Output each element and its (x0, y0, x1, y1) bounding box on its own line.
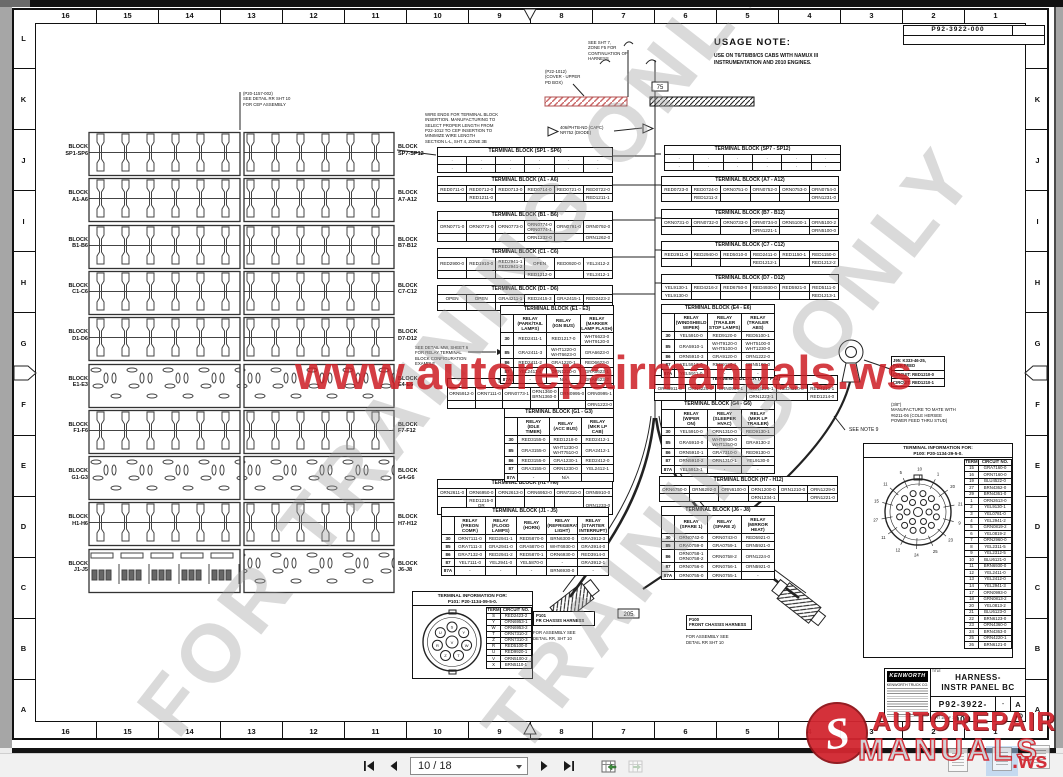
terminal-block-graphic (88, 455, 396, 501)
table-cell: 85 (662, 436, 675, 449)
table-cell: YEL9130-0 (741, 457, 774, 465)
table-cell (660, 493, 690, 501)
table-cell (689, 493, 719, 501)
table-cell: ORN1310-1 (708, 457, 741, 465)
table-cell: YEL5910-0 (675, 331, 708, 339)
circuit-cell: BRN5110-1 (501, 662, 532, 668)
p101-connector-drawing: VSYWTZRU (418, 609, 488, 677)
table-cell (777, 392, 808, 400)
first-page-button[interactable] (360, 757, 378, 775)
page-gap-top (0, 0, 1063, 7)
table-cell: YEL9130-0 (662, 291, 692, 299)
svg-text:27: 27 (873, 518, 878, 523)
zone-letter: C (1026, 558, 1049, 619)
table-cell: RED0712-0 (467, 185, 496, 193)
table-cell: YEL5913-1 (675, 465, 708, 473)
table-cell: ORN1221-0 (808, 493, 838, 501)
table-cell: WHT1220-0 WHT6623-0 (547, 346, 580, 359)
table-title: TERMINAL BLOCK (C7 - C12) (661, 241, 839, 250)
zone-number: 11 (344, 722, 406, 740)
zone-letter: I (1026, 191, 1049, 252)
table-cell: ORN0791-0 (554, 220, 583, 233)
zone-letter: K (1026, 69, 1049, 130)
table-cell: GRN5921-0 (741, 542, 774, 550)
relay-header: RELAY (SPARE 1) (675, 515, 708, 533)
table-cell: 87 (505, 465, 518, 473)
see-note-9: SEE NOTE 9 (849, 427, 889, 433)
terminal-table-c1: TERMINAL BLOCK (C1 - C6)RED2900-0RED1910… (437, 248, 613, 279)
table-title: TERMINAL BLOCK (C1 - C6) (437, 248, 613, 257)
table-cell: RED0714-0 (525, 185, 554, 193)
table-cell: GRA0759-1 (708, 542, 741, 550)
viewer-canvas-left (0, 7, 12, 748)
table-cell: 30 (662, 427, 675, 435)
table-cell: ORN0755-1 (708, 571, 741, 579)
table-cell: ORN0734-0 (750, 218, 780, 226)
table-cell (496, 270, 525, 278)
table-cell: · (782, 162, 811, 170)
table-cell: ORN5921-0 (741, 563, 774, 571)
table-cell: 87 (662, 457, 675, 465)
block-label-right: BLOCK E4-E6 (398, 376, 442, 389)
table-cell: RED0721-0 (554, 185, 583, 193)
usage-note-title: USAGE NOTE: (714, 37, 791, 48)
table-cell: RED2412-1 (582, 435, 614, 443)
zone-number: 15 (96, 8, 158, 23)
table-cell: OPEN (438, 294, 467, 302)
zone-number: 9 (468, 8, 530, 23)
table-cell: GRA1230-1 (550, 457, 582, 465)
prev-view-icon (600, 759, 617, 774)
table-cell: · (525, 164, 554, 172)
block-label-left: BLOCK H1-H6 (44, 514, 88, 527)
table-cell: RED1212-0 (525, 270, 554, 278)
relay-table-j1: TERMINAL BLOCK (J1 - J5)RELAY (FREON COM… (441, 507, 609, 576)
table-cell: - (547, 559, 578, 567)
table-cell: RED1217-0 (547, 332, 580, 345)
table-cell: · (525, 156, 554, 164)
prev-view-button[interactable] (598, 757, 618, 775)
table-cell: · (438, 164, 467, 172)
zone-letter: L (12, 8, 35, 69)
table-title: TERMINAL BLOCK (E4 - E6) (661, 304, 775, 313)
last-page-button[interactable] (560, 757, 578, 775)
table-cell: RED5870-1 (516, 551, 547, 559)
table-title: TERMINAL BLOCK (A7 - A12) (661, 176, 839, 185)
table-cell: GRA6623-2 (580, 375, 613, 383)
table-cell: · (496, 156, 525, 164)
table-cell: ORN1221-1 (750, 226, 780, 234)
table-cell: ORN1222-0 (741, 353, 774, 361)
relay-header: RELAY (TRAILER ABS) (741, 313, 774, 331)
table-cell: RED2900-0 (438, 257, 467, 270)
table-cell: ORN5912-0 (448, 387, 476, 400)
table-cell (721, 193, 751, 201)
table-cell: ORN6100-0 (719, 485, 749, 493)
table-cell (780, 226, 810, 234)
table-cell: · (811, 154, 840, 162)
relay-header: RELAY (MARKER LAMP FLASH) (580, 314, 613, 332)
table-title: TERMINAL BLOCK (H7 - H12) (659, 476, 838, 485)
table-cell: ORN1210-0 (778, 485, 808, 493)
p100-info-panel: TERMINAL INFORMATION FOR: P100: P20-1134… (863, 443, 1013, 658)
prev-page-button[interactable] (385, 757, 403, 775)
zone-letter: B (12, 619, 35, 680)
relay-header: RELAY (MKR LP CAB) (582, 417, 614, 435)
zone-number: 9 (468, 722, 530, 740)
zone-number: 12 (282, 8, 344, 23)
table-cell: · (583, 164, 612, 172)
title-block-fine-print (887, 688, 928, 717)
table-cell: ORN4226-0 (685, 384, 716, 392)
terminal-block-graphic (88, 409, 396, 455)
table-cell (662, 226, 692, 234)
table-cell: ORN0756-0 (675, 563, 708, 571)
table-cell (721, 258, 751, 266)
table-cell: YEL5910-0 (675, 427, 708, 435)
table-cell (721, 226, 751, 234)
block-label-right: BLOCK B7-B12 (398, 237, 442, 250)
table-cell (467, 302, 496, 310)
table-cell: ORN4229-1 (746, 384, 777, 392)
relay-table-g4: TERMINAL BLOCK (G4 - G6)RELAY (WIPER ON)… (661, 400, 775, 474)
zone-number: 14 (158, 722, 220, 740)
table-cell: ORN7310-0 (554, 488, 583, 496)
table-cell: ORN1200-0 (748, 485, 778, 493)
zone-number: 7 (592, 8, 654, 23)
zone-number: 2 (902, 8, 964, 23)
table-cell: RED0722-0 (583, 185, 612, 193)
table-cell: RED2423-2 (583, 294, 612, 302)
table-cell: 87A (662, 571, 675, 579)
svg-text:11: 11 (881, 535, 886, 540)
table-cell: 86 (662, 550, 675, 563)
table-cell: ORN1234-1 (748, 493, 778, 501)
table-cell: RED2941-2 (485, 551, 516, 559)
page-number-combobox[interactable]: 10 / 18 (410, 757, 528, 775)
table-cell: · (496, 164, 525, 172)
table-cell: RED3155-0 (518, 435, 550, 443)
table-cell: ORN7111-0 (475, 387, 503, 400)
table-cell: RED1150-0 (809, 250, 839, 258)
next-page-button[interactable] (535, 757, 553, 775)
zone-number: 8 (530, 8, 592, 23)
zone-number: 1 (964, 8, 1026, 23)
page-number-value: 10 / 18 (411, 760, 452, 772)
svg-text:11: 11 (883, 482, 888, 487)
table-cell: RED6750-0 (721, 283, 751, 291)
table-cell: - (578, 567, 609, 575)
table-cell: - (485, 567, 516, 575)
table-cell: RED1213-1 (809, 291, 839, 299)
document-icon[interactable] (948, 748, 968, 772)
table-cell: 85 (505, 444, 518, 457)
block-label-right: BLOCK F7-F12 (398, 422, 442, 435)
zone-number: 15 (96, 722, 158, 740)
zone-letter: F (1026, 374, 1049, 435)
table-cell: ORN0773-1 (503, 387, 531, 400)
first-page-icon (362, 759, 376, 773)
table-cell: ORN0772-0 (467, 220, 496, 233)
block-label-right: BLOCK H7-H12 (398, 514, 442, 527)
svg-text:W: W (465, 643, 469, 648)
table-cell: GRA5910-1 (675, 340, 708, 353)
table-cell: RED5921-0 (741, 533, 774, 541)
table-cell: ORN0773-0 (496, 220, 525, 233)
table-cell: 87 (662, 361, 675, 369)
zone-letter: J (12, 130, 35, 191)
circuit-cell: ORN7310-3 (501, 638, 532, 644)
table-cell: RED2911-0 (662, 250, 692, 258)
table-cell: WHT6930-0 WHT1310-0 (708, 436, 741, 449)
table-cell: ORN1231-0 (809, 193, 839, 201)
table-cell (750, 193, 780, 201)
table-cell: ORN0755-0 (675, 571, 708, 579)
table-title: TERMINAL BLOCK (A1 - A6) (437, 176, 613, 185)
table-cell: RED1211-2 (691, 193, 721, 201)
usage-note-body: USE ON T6/T8/B9/C5 CABS WITH NAMUX III I… (714, 53, 818, 66)
block-label-right: BLOCK J6-J8 (398, 561, 442, 574)
block-label-right: BLOCK G4-G6 (398, 468, 442, 481)
table-cell: · (467, 164, 496, 172)
table-cell (721, 291, 751, 299)
table-cell (438, 302, 467, 310)
table-cell: RED9120-1 (708, 361, 741, 369)
j95-head: J95: K333-46-25, PWR FEED (892, 357, 944, 370)
terminal-table-sp7: TERMINAL BLOCK (SP7 - SP12)············ (664, 145, 841, 171)
prev-page-icon (387, 759, 401, 773)
table-cell: RED2941-1 (485, 534, 516, 542)
table-cell: ORN1262-0 (583, 233, 612, 241)
svg-text:Z: Z (444, 653, 447, 658)
table-cell: GRA1220-1 (547, 359, 580, 367)
table-cell: OPEN (467, 294, 496, 302)
zone-number: 3 (840, 8, 902, 23)
table-cell: RED4216-2 (691, 283, 721, 291)
svg-text:5: 5 (900, 470, 903, 475)
relay-header: RELAY (REFRIGERATOR LIGHT) (547, 516, 578, 534)
svg-text:10: 10 (917, 467, 922, 472)
company-name: KENWORTH TRUCK CO. (885, 683, 930, 687)
svg-text:V: V (451, 640, 454, 645)
table-cell: · (665, 162, 694, 170)
svg-text:15: 15 (874, 498, 879, 503)
table-cell: ORN0731-0 (662, 218, 692, 226)
table-cell: - (741, 369, 774, 377)
table-cell: RED1910-0 (467, 257, 496, 270)
table-cell: ORN6953-0 (525, 488, 554, 496)
table-cell: RED1218-0 (550, 435, 582, 443)
table-cell: 85 (662, 542, 675, 550)
table-cell: 86 (505, 457, 518, 465)
terminal-block-graphic (88, 177, 396, 223)
svg-text:U: U (439, 630, 442, 635)
table-cell: GRA9120-0 (708, 353, 741, 361)
viewer-toolbar: 10 / 18 (0, 753, 1063, 777)
zone-letter: H (1026, 252, 1049, 313)
table-cell (691, 258, 721, 266)
table-cell: 30 (662, 533, 675, 541)
table-title: TERMINAL BLOCK (D7 - D12) (661, 274, 839, 283)
svg-text:Y: Y (462, 630, 465, 635)
table-cell (438, 193, 467, 201)
table-cell: · (554, 156, 583, 164)
table-cell (750, 291, 780, 299)
table-cell: WHT6930-0 (547, 543, 578, 551)
table-cell (467, 233, 496, 241)
table-cell: ORN5910-3 (675, 353, 708, 361)
table-cell: N/A (550, 473, 582, 481)
zone-number: 4 (778, 8, 840, 23)
table-cell: YEL5912-0 (675, 361, 708, 369)
drawing-number-box: P92-3922-000 (903, 25, 1045, 45)
table-cell (525, 193, 554, 201)
table-cell: ORN0733-0 (721, 218, 751, 226)
table-cell: ORN1224-0 (741, 550, 774, 563)
table-cell: 87A (505, 473, 518, 481)
terminal-block-graphic (88, 131, 396, 177)
table-cell: WHT1230-0 WHT7510-0 (550, 444, 582, 457)
terminal-block-graphic (88, 270, 396, 316)
table-cell: · (723, 154, 752, 162)
relay-header: RELAY (MKR LP TRAILER) (741, 409, 774, 427)
zone-number: 10 (406, 722, 468, 740)
next-page-icon (537, 759, 551, 773)
terminal-table-b7: TERMINAL BLOCK (B7 - B12)ORN0731-0ORN073… (661, 209, 839, 235)
relay-header: RELAY (MIRROR HEAT) (741, 515, 774, 533)
relay-header: RELAY (HORN) (516, 516, 547, 534)
terminal-block-graphic (88, 224, 396, 270)
title-label: TITLE (932, 669, 941, 673)
block-label-left: BLOCK B1-B6 (44, 237, 88, 250)
table-cell: - (516, 567, 547, 575)
table-cell (554, 270, 583, 278)
table-cell: 86 (662, 449, 675, 457)
table-cell: ORN1232-0 (525, 233, 554, 241)
table-cell (662, 258, 692, 266)
table-cell: GRA3914-0 (578, 543, 609, 551)
relay-header: RELAY (IDLE TIMER) (518, 417, 550, 435)
svg-text:9: 9 (958, 521, 961, 526)
svg-text:R: R (436, 643, 439, 648)
table-cell: ORN0752-0 (750, 185, 780, 193)
table-cell (691, 226, 721, 234)
table-cell: 87 (662, 563, 675, 571)
zone-ruler-right: LKJIHGFEDCBA (1026, 8, 1049, 740)
detail-mw-note: SEE DETAIL MW, SHEET 6 FOR RELAY TERMINA… (415, 345, 495, 366)
table-cell: YEL2412-2 (583, 257, 612, 270)
circuit-cell: ORN6953-2 (501, 625, 532, 631)
sheet-number: SHT 10 OF 18 (933, 716, 956, 720)
continuation-note: SEE SHT 7, ZONE F5 FOR CONTINUATION OF H… (588, 40, 634, 61)
block-label-left: BLOCK J1-J5 (44, 561, 88, 574)
terminal-table-b1: TERMINAL BLOCK (B1 - B6)ORN0771-0ORN0772… (437, 211, 613, 242)
j95-circuit-2: CIRCUIT: RED1210-1 (892, 378, 944, 386)
table-cell: 86 (442, 551, 455, 559)
table-cell: GRA3155-0 (518, 444, 550, 457)
document-icon[interactable] (992, 747, 1012, 771)
relay-header: RELAY (SLEEPER HVAC) (708, 409, 741, 427)
table-cell: GRA7310-0 (708, 449, 741, 457)
table-cell: ORN7111-0 (455, 534, 486, 542)
chevron-down-icon (516, 765, 522, 769)
table-cell: ORN5100-0 (741, 361, 774, 369)
table-cell: GRA4211-1 (496, 294, 525, 302)
zone-letter: A (12, 680, 35, 740)
zone-number: 12 (282, 722, 344, 740)
block-label-left: BLOCK A1-A6 (44, 190, 88, 203)
terminal-table-a1: TERMINAL BLOCK (A1 - A6)RED0711-0RED0712… (437, 176, 613, 202)
table-cell: BRN6300-0 (547, 534, 578, 542)
table-cell: GRA5910-0 (675, 436, 708, 449)
terminal-table-a7: TERMINAL BLOCK (A7 - A12)RED0723-0RED072… (661, 176, 839, 202)
capc-diode-note: 406/PHTB-ND (CAPC) NR752 (DIODE) (560, 125, 620, 136)
table-cell (475, 400, 503, 408)
cep-note: (P20-1157-002) SEE DETAIL RR SHT 10 FOR … (243, 91, 313, 107)
table-cell: RED1150-1 (780, 250, 810, 258)
table-cell: · (467, 156, 496, 164)
drawing-number: P92-3922-000 (904, 26, 1012, 35)
table-cell: RED5100-1 (741, 331, 774, 339)
svg-text:S: S (451, 625, 454, 630)
table-cell: - (741, 571, 774, 579)
zone-letter: D (12, 497, 35, 558)
table-cell: RED3914-0 (578, 551, 609, 559)
table-cell: GRA3155-0 (518, 465, 550, 473)
table-cell: GRA0759-0 (675, 542, 708, 550)
table-title: TERMINAL BLOCK (B1 - B6) (437, 211, 613, 220)
table-cell: ORN1360-0 BRN1360-0 (530, 387, 558, 400)
zone-number: 10 (406, 8, 468, 23)
table-cell: RED4210-0 (777, 384, 808, 392)
table-title: TERMINAL BLOCK (J1 - J5) (441, 507, 609, 516)
table-cell: GRA6623-1 (580, 367, 613, 375)
relay-header: RELAY (SPARE 2) (708, 515, 741, 533)
zone-number: 6 (654, 8, 716, 23)
terminal-block-graphic (88, 316, 396, 362)
terminal-block-graphic (88, 501, 396, 547)
document-icon[interactable] (1030, 745, 1050, 769)
zone-number: 14 (158, 8, 220, 23)
zone-number: 11 (344, 8, 406, 23)
table-cell: ORN6950-0 (467, 488, 496, 496)
table-cell: · (554, 164, 583, 172)
table-cell: RED0724-0 (691, 185, 721, 193)
next-view-icon (627, 759, 644, 774)
table-cell: OPEN (525, 257, 554, 270)
table-cell: RED1212-2 (809, 258, 839, 266)
table-cell: RED0920-0 (554, 257, 583, 270)
table-cell: ORN5911-0 (655, 384, 686, 392)
table-cell: WHT5100-0 WHT1230-0 (741, 340, 774, 353)
table-cell: 87A (662, 465, 675, 473)
table-cell: 85 (662, 340, 675, 353)
table-cell: - (741, 465, 774, 473)
table-cell: - (708, 369, 741, 377)
table-cell: - (514, 375, 547, 383)
svg-text:23: 23 (948, 538, 953, 543)
table-cell: GRA6623-0 (580, 346, 613, 359)
table-cell: RED5921-0 (780, 283, 810, 291)
zone-ruler-bottom: 16151413121110987654321 (35, 722, 1026, 740)
relay-header: RELAY (STARTER INTERRUPT) (578, 516, 609, 534)
table-title: TERMINAL BLOCK (D1 - D6) (437, 285, 613, 294)
zone-letter: G (12, 313, 35, 374)
table-cell: YEL5870-0 (516, 559, 547, 567)
p100-callout: P100 FRONT CHASSIS HARNESS (686, 615, 752, 630)
next-view-button[interactable] (625, 757, 645, 775)
table-cell: 30 (662, 331, 675, 339)
